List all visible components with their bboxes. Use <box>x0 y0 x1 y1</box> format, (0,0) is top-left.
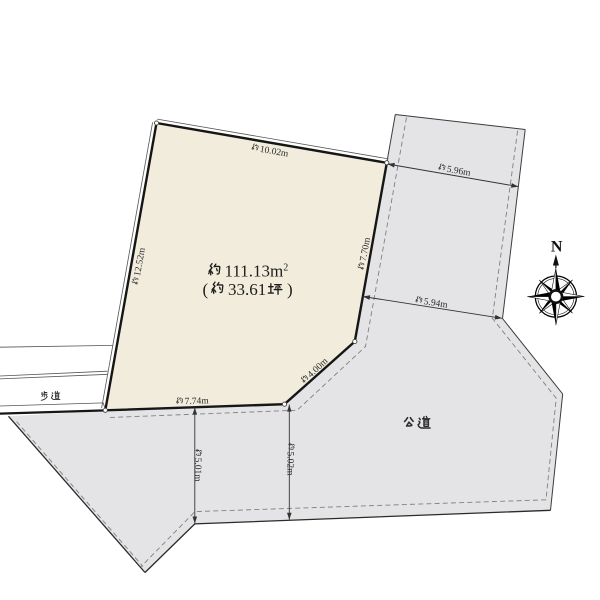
svg-text:N: N <box>551 239 563 256</box>
svg-text:33.61: 33.61 <box>228 280 266 299</box>
svg-text:111.13m2: 111.13m2 <box>225 262 289 281</box>
svg-text:): ) <box>287 280 293 299</box>
svg-text:5.02m: 5.02m <box>285 452 295 477</box>
svg-text:5.01m: 5.01m <box>192 458 202 483</box>
svg-text:7.74m: 7.74m <box>184 396 209 407</box>
svg-text:(: ( <box>203 280 209 299</box>
